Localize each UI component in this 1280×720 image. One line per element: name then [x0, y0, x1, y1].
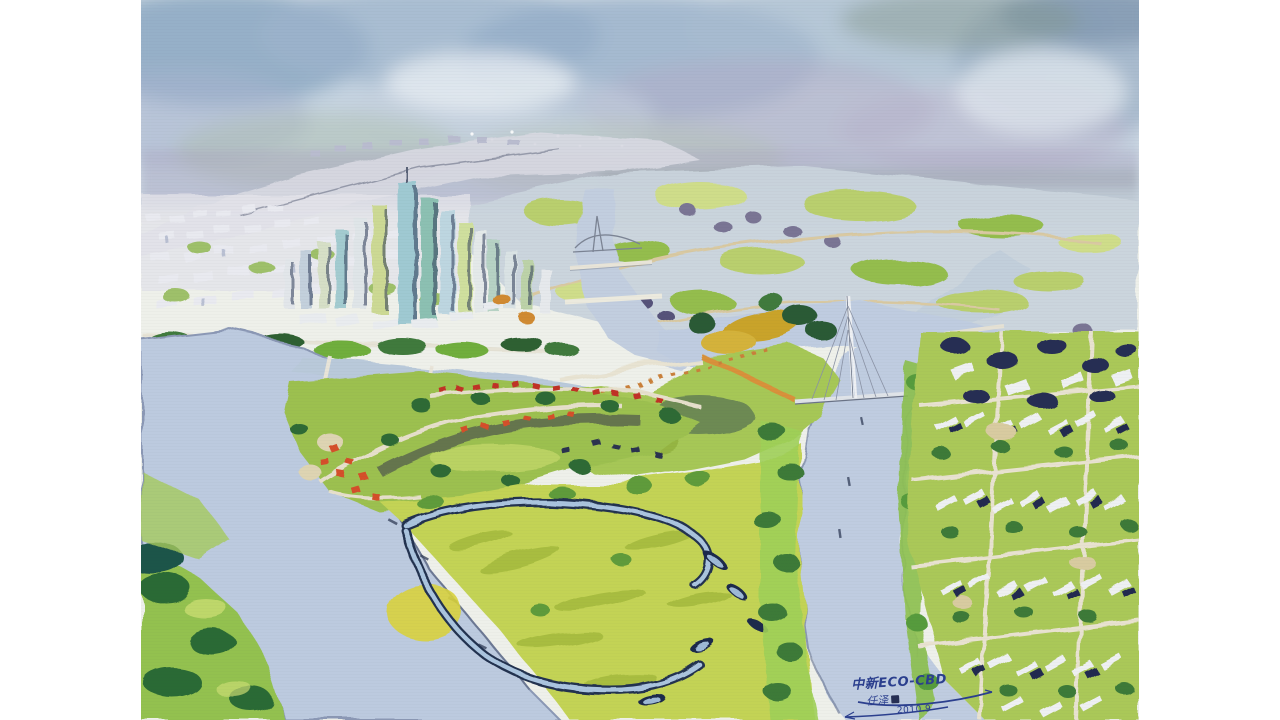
artist-signature: 任泽 — [866, 694, 889, 707]
watercolor-painting — [0, 0, 1280, 720]
screenshot-canvas: 中新ECO-CBD 任泽 2010.9 — [0, 0, 1280, 720]
residential-grid — [908, 332, 1139, 720]
artist-seal — [891, 695, 899, 703]
